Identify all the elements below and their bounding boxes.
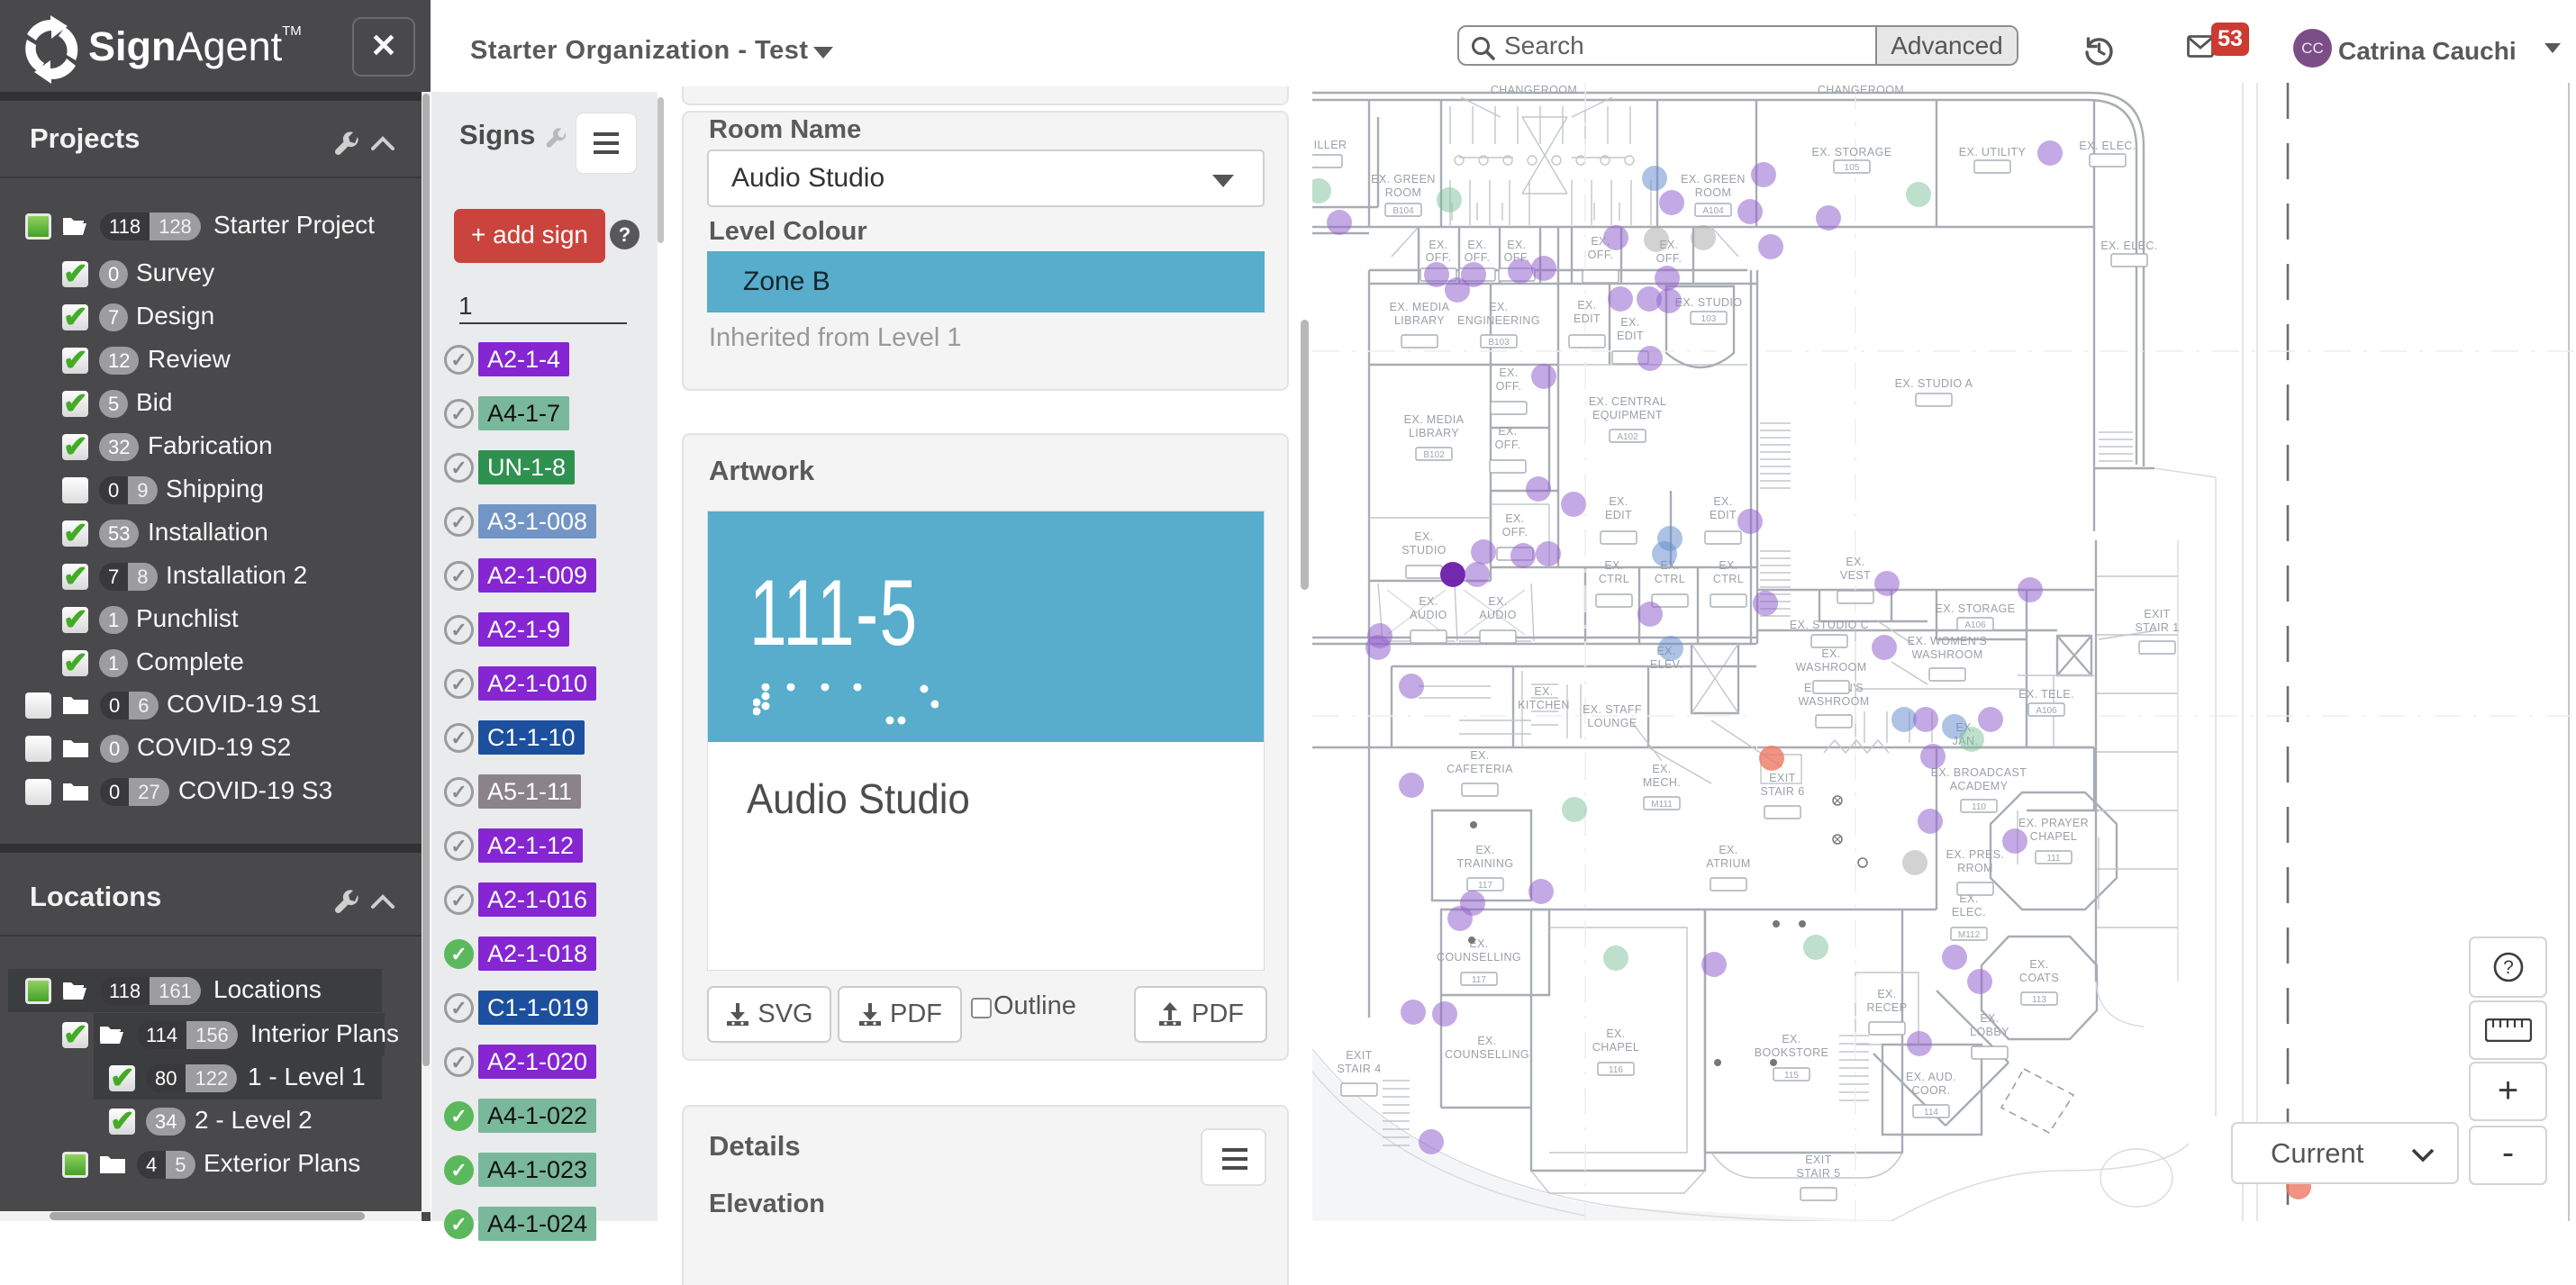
svg-text:EDIT: EDIT — [1617, 330, 1644, 342]
svg-text:AUDIO: AUDIO — [1410, 609, 1447, 621]
svg-text:ROOM: ROOM — [1695, 186, 1732, 199]
svg-text:EXIT: EXIT — [2144, 608, 2170, 620]
svg-text:113: 113 — [2032, 995, 2046, 1005]
svg-text:EX.: EX. — [1980, 1012, 1999, 1025]
svg-text:OFF.: OFF. — [1502, 526, 1528, 538]
svg-text:EX. GREEN: EX. GREEN — [1681, 173, 1746, 186]
svg-text:B103: B103 — [1488, 338, 1510, 348]
svg-text:CAFETERIA: CAFETERIA — [1447, 763, 1513, 775]
svg-text:LIBRARY: LIBRARY — [1409, 427, 1459, 439]
svg-text:EQUIPMENT: EQUIPMENT — [1592, 409, 1663, 421]
svg-text:B104: B104 — [1392, 206, 1414, 216]
svg-text:EDIT: EDIT — [1710, 509, 1737, 521]
svg-text:117: 117 — [1478, 881, 1492, 891]
svg-text:LOUNGE: LOUNGE — [1587, 717, 1637, 729]
svg-text:EXIT: EXIT — [1769, 772, 1795, 784]
svg-text:EDIT: EDIT — [1574, 312, 1601, 325]
svg-text:EXIT: EXIT — [1805, 1154, 1831, 1166]
svg-text:EX. GREEN: EX. GREEN — [1371, 173, 1436, 186]
svg-text:CHAPEL: CHAPEL — [1592, 1041, 1639, 1054]
svg-text:CTRL: CTRL — [1713, 573, 1744, 585]
svg-text:EX. STORAGE: EX. STORAGE — [1936, 602, 2016, 615]
svg-text:EX. MEDIA: EX. MEDIA — [1404, 413, 1465, 426]
svg-text:EX.: EX. — [1609, 495, 1628, 508]
svg-text:ATRIUM: ATRIUM — [1706, 857, 1750, 870]
svg-text:EX.: EX. — [1489, 301, 1508, 313]
svg-text:117: 117 — [1472, 975, 1486, 985]
svg-text:EX.: EX. — [1577, 299, 1596, 312]
svg-text:EX.: EX. — [1419, 595, 1438, 608]
svg-text:103: 103 — [1701, 314, 1717, 324]
svg-text:CHANGEROOM: CHANGEROOM — [1818, 84, 1904, 96]
svg-text:EX.: EX. — [1620, 316, 1639, 329]
svg-text:STAIR 5: STAIR 5 — [1796, 1167, 1840, 1180]
svg-text:EX.: EX. — [1467, 239, 1486, 251]
svg-text:EX.: EX. — [1505, 512, 1524, 525]
svg-text:EX. STUDIO: EX. STUDIO — [1675, 296, 1743, 309]
svg-text:EX. PRAYER: EX. PRAYER — [2018, 817, 2089, 829]
svg-text:EX.: EX. — [1719, 559, 1737, 572]
svg-text:EX.: EX. — [1604, 559, 1623, 572]
svg-text:EX. TELE.: EX. TELE. — [2018, 688, 2074, 701]
svg-text:OFF.: OFF. — [1495, 439, 1521, 451]
svg-text:BOOKSTORE: BOOKSTORE — [1755, 1046, 1829, 1059]
svg-text:COATS: COATS — [2019, 972, 2059, 984]
svg-text:EX. STUDIO A: EX. STUDIO A — [1895, 377, 1973, 390]
svg-text:ILLER: ILLER — [1314, 139, 1347, 151]
svg-text:EX.: EX. — [1488, 595, 1507, 608]
svg-text:WASHROOM: WASHROOM — [1798, 695, 1869, 708]
svg-text:EX.: EX. — [1877, 988, 1896, 1000]
svg-text:EX.: EX. — [1821, 647, 1840, 660]
svg-text:STAIR 4: STAIR 4 — [1337, 1063, 1381, 1075]
svg-text:111: 111 — [2046, 854, 2061, 864]
svg-text:EX.: EX. — [1429, 239, 1447, 251]
svg-text:EX.: EX. — [1846, 556, 1864, 568]
svg-text:EX.: EX. — [1782, 1033, 1800, 1045]
svg-text:EX.: EX. — [1470, 749, 1489, 762]
svg-text:EX. MEDIA: EX. MEDIA — [1390, 301, 1450, 313]
svg-text:EX.: EX. — [1477, 1035, 1496, 1047]
svg-text:STUDIO: STUDIO — [1401, 544, 1447, 557]
svg-text:ACADEMY: ACADEMY — [1950, 780, 2009, 792]
svg-text:EX.: EX. — [1414, 530, 1433, 543]
svg-text:ENGINEERING: ENGINEERING — [1457, 314, 1540, 327]
svg-text:KITCHEN: KITCHEN — [1518, 699, 1570, 711]
svg-text:115: 115 — [1784, 1071, 1799, 1081]
svg-text:EX. WOMEN’S: EX. WOMEN’S — [1908, 635, 1987, 647]
svg-text:M111: M111 — [1651, 800, 1673, 810]
svg-text:COUNSELLING: COUNSELLING — [1445, 1048, 1529, 1061]
svg-text:STAIR 6: STAIR 6 — [1760, 785, 1804, 798]
svg-text:105: 105 — [1845, 163, 1860, 173]
svg-text:CTRL: CTRL — [1655, 573, 1685, 585]
svg-text:EX. ELEC.: EX. ELEC. — [2100, 240, 2157, 252]
svg-text:COUNSELLING: COUNSELLING — [1437, 951, 1521, 964]
svg-text:EX.: EX. — [1713, 495, 1732, 508]
svg-text:RROM: RROM — [1957, 862, 1993, 874]
svg-text:EX.: EX. — [1606, 1027, 1625, 1040]
svg-text:EX.: EX. — [1475, 844, 1494, 856]
svg-text:OFF.: OFF. — [1426, 251, 1452, 264]
svg-text:M112: M112 — [1958, 930, 1981, 940]
svg-text:A106: A106 — [1964, 620, 1986, 630]
svg-text:COOR.: COOR. — [1912, 1084, 1951, 1097]
svg-text:ELEC.: ELEC. — [1952, 906, 1986, 919]
svg-text:RECEP: RECEP — [1866, 1001, 1907, 1014]
svg-text:EX. AUD.: EX. AUD. — [1906, 1071, 1956, 1083]
svg-text:VEST: VEST — [1840, 569, 1871, 582]
svg-text:WASHROOM: WASHROOM — [1911, 648, 1982, 661]
svg-text:EX.: EX. — [1499, 366, 1518, 379]
svg-text:B102: B102 — [1423, 450, 1445, 460]
svg-text:ROOM: ROOM — [1385, 186, 1422, 199]
svg-text:EX.: EX. — [1534, 685, 1553, 698]
svg-text:EX. STAFF: EX. STAFF — [1583, 703, 1642, 716]
svg-text:114: 114 — [1924, 1108, 1938, 1118]
svg-text:LIBRARY: LIBRARY — [1394, 314, 1445, 327]
svg-text:TRAINING: TRAINING — [1457, 857, 1514, 870]
svg-text:EDIT: EDIT — [1605, 509, 1632, 521]
svg-text:EX.: EX. — [1507, 239, 1526, 251]
svg-text:EX.: EX. — [2029, 958, 2048, 971]
svg-text:110: 110 — [1972, 802, 1986, 812]
svg-text:116: 116 — [1609, 1065, 1623, 1075]
svg-text:EX. UTILITY: EX. UTILITY — [1959, 146, 2027, 158]
svg-text:EX. BROADCAST: EX. BROADCAST — [1931, 766, 2027, 779]
svg-text:A102: A102 — [1617, 432, 1638, 442]
svg-text:OFF.: OFF. — [1656, 252, 1683, 265]
svg-text:EX. STUDIO C: EX. STUDIO C — [1790, 619, 1869, 631]
svg-text:ELEV.: ELEV. — [1650, 658, 1683, 671]
svg-text:?: ? — [2503, 957, 2514, 978]
svg-text:OFF.: OFF. — [1588, 249, 1614, 261]
svg-text:EX.: EX. — [1719, 844, 1737, 856]
svg-text:MECH.: MECH. — [1643, 776, 1681, 789]
svg-text:A106: A106 — [2036, 706, 2057, 716]
svg-text:EX. CENTRAL: EX. CENTRAL — [1589, 395, 1666, 408]
svg-text:CHAPEL: CHAPEL — [2030, 830, 2077, 843]
svg-text:CTRL: CTRL — [1599, 573, 1629, 585]
svg-text:WASHROOM: WASHROOM — [1795, 661, 1866, 674]
svg-text:AUDIO: AUDIO — [1479, 609, 1517, 621]
svg-text:EX. STORAGE: EX. STORAGE — [1812, 146, 1892, 158]
svg-text:EX. PRES.: EX. PRES. — [1946, 848, 2005, 861]
svg-text:OFF.: OFF. — [1465, 251, 1491, 264]
svg-text:LOBBY: LOBBY — [1970, 1026, 2009, 1038]
svg-text:CHANGEROOM: CHANGEROOM — [1491, 84, 1577, 96]
svg-text:EXIT: EXIT — [1346, 1049, 1372, 1062]
svg-text:EX.: EX. — [1498, 425, 1517, 438]
svg-text:EX.: EX. — [1652, 763, 1671, 775]
svg-text:EX. ELEC.: EX. ELEC. — [2079, 140, 2136, 152]
svg-text:A104: A104 — [1702, 206, 1724, 216]
svg-text:STAIR 1: STAIR 1 — [2135, 621, 2179, 634]
svg-text:OFF.: OFF. — [1496, 380, 1522, 393]
